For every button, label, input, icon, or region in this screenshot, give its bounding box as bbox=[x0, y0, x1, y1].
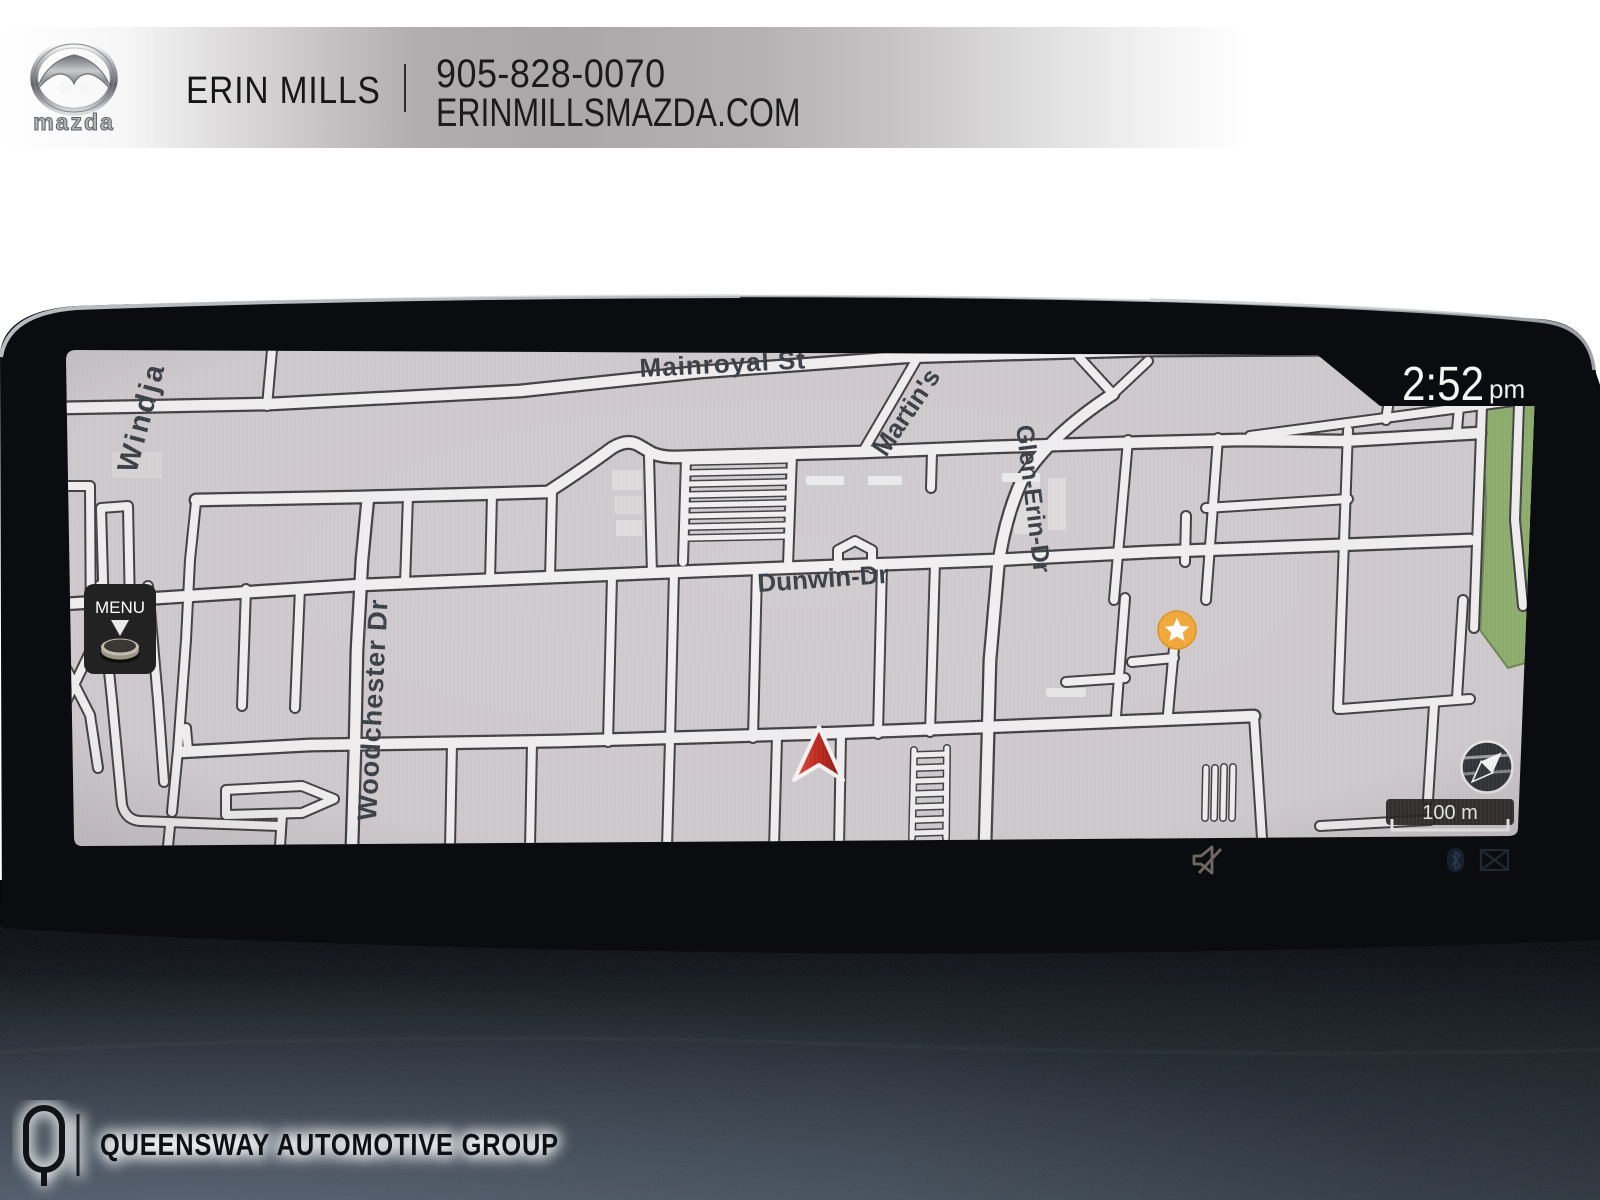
svg-text:QUEENSWAY AUTOMOTIVE GROUP: QUEENSWAY AUTOMOTIVE GROUP bbox=[100, 1128, 559, 1163]
svg-text:MENU: MENU bbox=[95, 598, 145, 617]
svg-text:2:52: 2:52 bbox=[1402, 358, 1484, 411]
svg-text:pm: pm bbox=[1489, 374, 1525, 404]
